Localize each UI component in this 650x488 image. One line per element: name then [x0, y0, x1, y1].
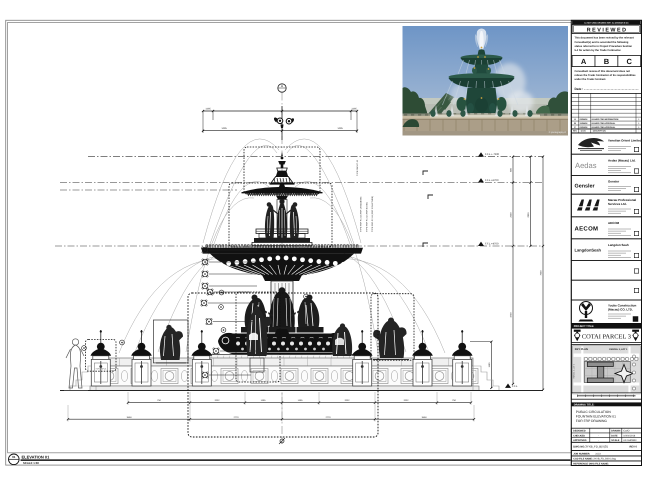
svg-text:TYPE FRP-PC-02 (FRP BASIN): TYPE FRP-PC-02 (FRP BASIN): [366, 202, 369, 232]
svg-text:1495: 1495: [351, 108, 357, 111]
svg-text:3YXB_FD_B(X)01: 3YXB_FD_B(X)01: [585, 445, 608, 449]
svg-text:PARCEL 3, LOT 1: PARCEL 3, LOT 1: [609, 348, 628, 351]
svg-text:Services Ltd.: Services Ltd.: [608, 202, 627, 206]
svg-text:REV 0: REV 0: [630, 446, 638, 449]
svg-text:10/04/2016: 10/04/2016: [623, 434, 636, 437]
svg-text:2770: 2770: [326, 416, 332, 419]
svg-text:TYPE FRP-PC-03 (FRP ORNAMENT): TYPE FRP-PC-03 (FRP ORNAMENT): [360, 196, 363, 232]
svg-text:Gensler: Gensler: [608, 180, 620, 184]
svg-text:R E V I E W E D: R E V I E W E D: [587, 27, 626, 33]
svg-text:© photography-fr: © photography-fr: [549, 131, 567, 134]
svg-text:Langdon Seah: Langdon Seah: [608, 243, 629, 247]
svg-text:05/09/16: 05/09/16: [580, 118, 589, 121]
svg-text:C: C: [627, 57, 633, 66]
svg-text:5.4 for action by the Trade Co: 5.4 for action by the Trade Contractor.: [575, 49, 622, 52]
svg-text:2002: 2002: [345, 399, 351, 402]
svg-text:3YXB_FD_B001.dwg: 3YXB_FD_B001.dwg: [593, 458, 616, 461]
svg-text:TYPE FRP-PC-05: TYPE FRP-PC-05: [356, 159, 359, 176]
svg-text:Consultant(s) and is accorded: Consultant(s) and is accorded the follow…: [575, 41, 629, 44]
svg-text:1495: 1495: [298, 399, 304, 402]
svg-text:TYPE FRP-PC-01 (FRP SCULPTURE): TYPE FRP-PC-01 (FRP SCULPTURE): [371, 196, 374, 232]
svg-text:SCALE: SCALE: [611, 439, 620, 442]
svg-text:DESIGNED: DESIGNED: [573, 430, 586, 433]
svg-text:Venetian Orient Limited: Venetian Orient Limited: [608, 139, 642, 143]
svg-text:CAD FILE NAME:: CAD FILE NAME:: [573, 458, 593, 461]
svg-text:2000: 2000: [510, 212, 513, 218]
svg-text:B: B: [604, 57, 610, 66]
svg-text:AECOM: AECOM: [608, 221, 620, 225]
svg-text:2002: 2002: [404, 399, 410, 402]
svg-text:Aedas: Aedas: [575, 161, 597, 170]
svg-text:Consultant review of this d: Consultant review of this document does …: [575, 70, 631, 73]
svg-text:SCALE 1:50: SCALE 1:50: [23, 461, 39, 465]
svg-text:LangdonSeah: LangdonSeah: [575, 248, 602, 253]
svg-text:2002: 2002: [215, 399, 221, 402]
svg-text:Aedas (Macau) Ltd.: Aedas (Macau) Ltd.: [608, 159, 636, 163]
svg-text:1495: 1495: [337, 127, 343, 130]
svg-text:CarlO: CarlO: [623, 430, 629, 433]
svg-text:JOB NUMBER:: JOB NUMBER:: [573, 452, 590, 455]
svg-text:ELEVATION 01: ELEVATION 01: [22, 455, 51, 460]
svg-text:F.F.L + 7500: F.F.L + 7500: [485, 153, 500, 156]
svg-text:AECOM: AECOM: [575, 226, 599, 233]
svg-text:FOR FRP DRAWING: FOR FRP DRAWING: [576, 419, 608, 423]
svg-text:ISSUED FOR APPROVAL: ISSUED FOR APPROVAL: [592, 122, 616, 125]
svg-text:7500: 7500: [540, 270, 543, 276]
svg-text:2770: 2770: [234, 416, 240, 419]
svg-text:21/09/16: 21/09/16: [580, 122, 589, 125]
svg-text:status referred to in Project: status referred to in Project Procedure …: [575, 45, 633, 48]
svg-text:COTAI PARCEL 3: COTAI PARCEL 3: [582, 334, 631, 341]
svg-text:DRAWN: DRAWN: [611, 430, 620, 433]
svg-text:F.F.L +4700: F.F.L +4700: [485, 243, 499, 246]
svg-text:DATE: DATE: [611, 434, 618, 437]
svg-text:3658: 3658: [422, 416, 428, 419]
svg-text:F.F.L: F.F.L: [512, 385, 518, 388]
svg-text:PARCEL 3, LOT 2: PARCEL 3, LOT 2: [573, 364, 576, 378]
svg-text:DRAWING TITLE:: DRAWING TITLE:: [574, 403, 595, 406]
svg-text:DWG NO:: DWG NO:: [573, 446, 585, 449]
svg-text:under the Trade Contract.: under the Trade Contract.: [575, 78, 607, 81]
svg-text:3123: 3123: [595, 452, 601, 455]
svg-text:FOUNTAIN ELEVATION 01: FOUNTAIN ELEVATION 01: [576, 415, 616, 419]
svg-text:PUBLIC CIRCULATION: PUBLIC CIRCULATION: [576, 410, 612, 414]
svg-text:REFERENCE DWG FILE NAME:: REFERENCE DWG FILE NAME:: [573, 462, 609, 465]
svg-text:KEY PLAN: KEY PLAN: [575, 348, 588, 351]
svg-text:(Macau) CO. LTD.: (Macau) CO. LTD.: [608, 307, 633, 311]
svg-text:AS SHOWN: AS SHOWN: [623, 439, 636, 442]
svg-text:1150: 1150: [488, 362, 491, 367]
svg-text:F.F.L +6700: F.F.L +6700: [485, 179, 499, 182]
svg-text:3658: 3658: [127, 416, 133, 419]
svg-text:Gensler: Gensler: [575, 184, 596, 190]
svg-text:01: 01: [12, 455, 16, 459]
svg-text:2800: 2800: [527, 212, 530, 218]
svg-text:DATE: DATE: [581, 130, 587, 133]
svg-text:TYPE FRP-05: TYPE FRP-05: [95, 367, 106, 370]
svg-text:4700: 4700: [510, 312, 513, 318]
svg-text:DESCRIPTION: DESCRIPTION: [593, 130, 607, 133]
svg-text:This document has been revised: This document has been revised by the re…: [575, 37, 634, 40]
svg-text:CHECKED: CHECKED: [573, 434, 585, 437]
svg-text:A: A: [581, 57, 587, 66]
svg-text:ISSUED FOR INFORMATION: ISSUED FOR INFORMATION: [592, 118, 619, 121]
svg-text:relieve the Trade Contractor: relieve the Trade Contractor of its resp…: [575, 74, 637, 77]
svg-text:1495: 1495: [221, 127, 227, 130]
svg-text:APPROVED: APPROVED: [573, 439, 587, 442]
svg-text:PROJECT TITLE:: PROJECT TITLE:: [574, 325, 594, 328]
svg-text:1495: 1495: [205, 108, 211, 111]
svg-text:Date :: Date :: [575, 87, 584, 91]
svg-text:1495: 1495: [261, 399, 267, 402]
